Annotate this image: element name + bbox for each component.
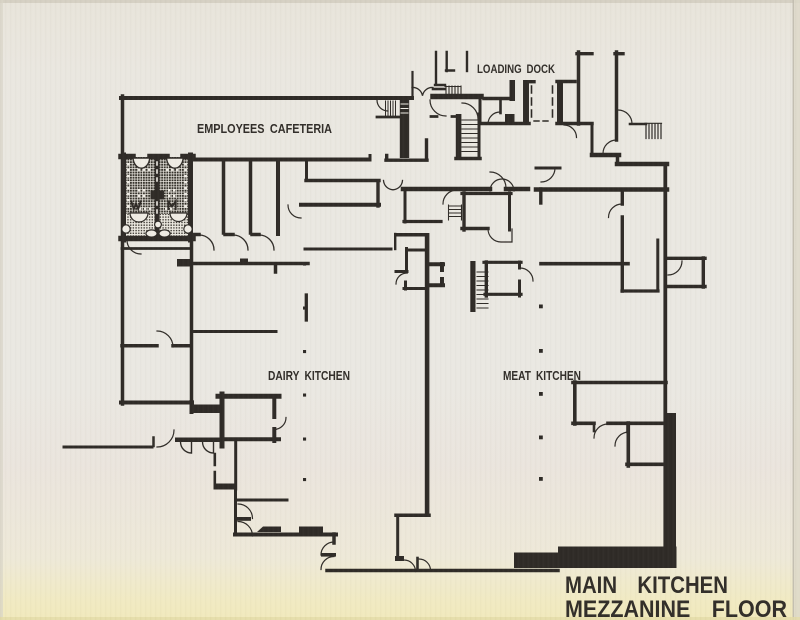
svg-text:MAIN KITCHEN: MAIN KITCHEN bbox=[565, 572, 728, 599]
svg-text:EMPLOYEES CAFETERIA: EMPLOYEES CAFETERIA bbox=[197, 122, 332, 136]
svg-text:DAIRY KITCHEN: DAIRY KITCHEN bbox=[268, 369, 350, 383]
svg-text:LOADING DOCK: LOADING DOCK bbox=[477, 62, 555, 76]
svg-text:MEZZANINE FLOOR: MEZZANINE FLOOR bbox=[565, 596, 787, 620]
svg-text:MEAT KITCHEN: MEAT KITCHEN bbox=[503, 369, 581, 383]
